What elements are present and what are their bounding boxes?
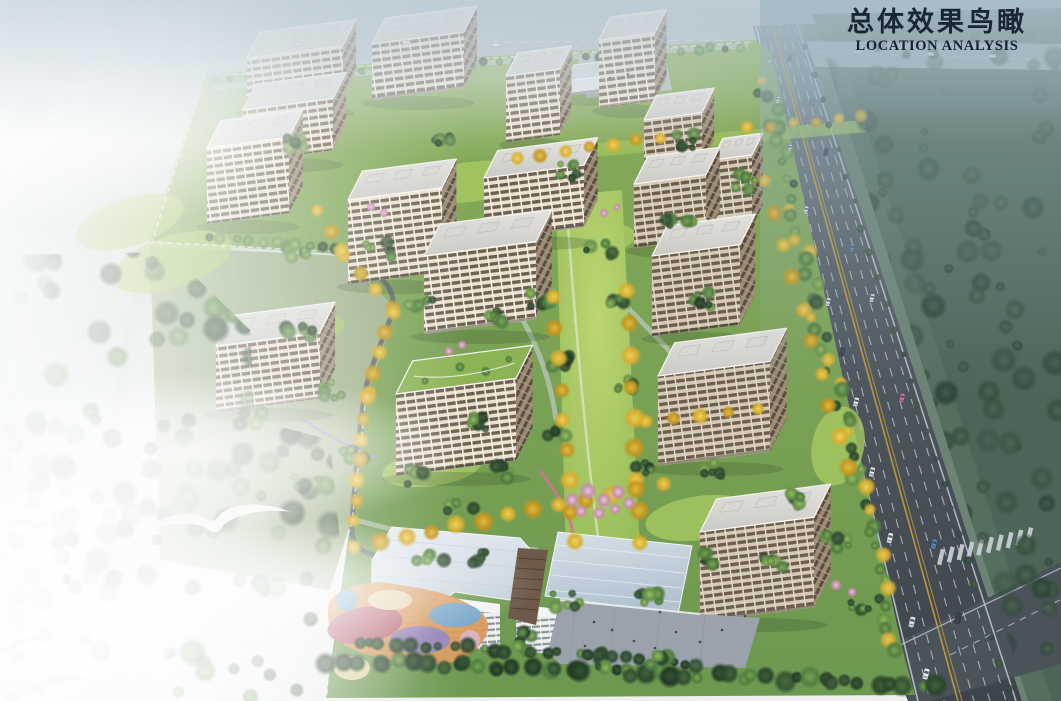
page-subtitle: LOCATION ANALYSIS xyxy=(847,38,1027,55)
page-title: 总体效果鸟瞰 xyxy=(847,7,1027,38)
aerial-rendering-page: 总体效果鸟瞰 LOCATION ANALYSIS xyxy=(0,0,1061,701)
aerial-view-canvas xyxy=(0,0,1061,701)
title-block: 总体效果鸟瞰 LOCATION ANALYSIS xyxy=(847,7,1027,55)
